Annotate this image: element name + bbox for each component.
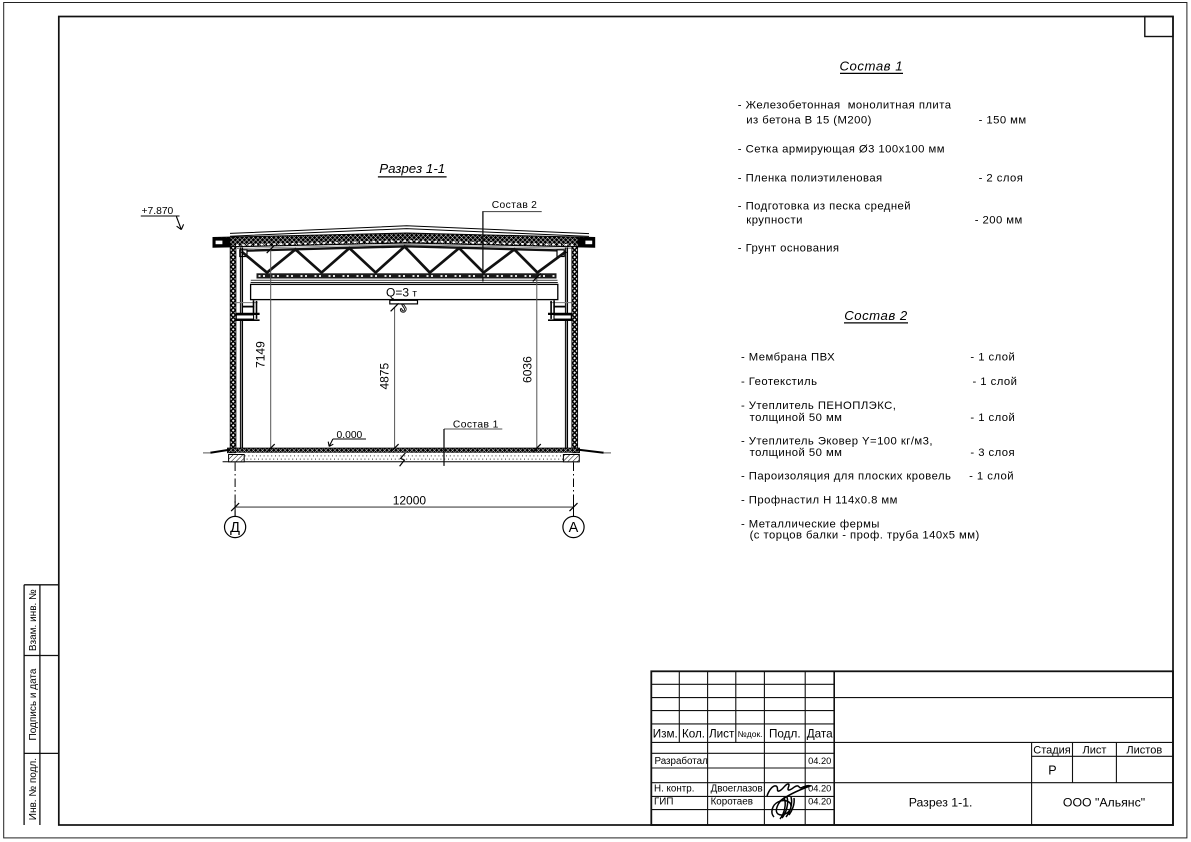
svg-text:- Утеплитель Эковер Y=100 кг/м: - Утеплитель Эковер Y=100 кг/м3, — [741, 436, 933, 448]
svg-text:из бетона В 15 (М200): из бетона В 15 (М200) — [746, 114, 871, 126]
svg-text:- Подготовка из песка средней: - Подготовка из песка средней — [738, 201, 911, 213]
svg-text:7149: 7149 — [254, 341, 268, 368]
svg-text:- 200 мм: - 200 мм — [975, 214, 1023, 226]
svg-text:Изм.: Изм. — [653, 728, 678, 741]
svg-text:№док.: №док. — [738, 729, 763, 739]
svg-text:6036: 6036 — [521, 356, 535, 383]
svg-text:- 1 слой: - 1 слой — [973, 376, 1018, 388]
svg-text:- 1 слой: - 1 слой — [970, 351, 1015, 363]
svg-text:Состав 2: Состав 2 — [492, 200, 538, 211]
svg-text:- Сетка армирующая Ø3 100х100: - Сетка армирующая Ø3 100х100 мм — [738, 144, 945, 156]
svg-text:Лист: Лист — [709, 728, 735, 741]
svg-text:- Мембрана ПВХ: - Мембрана ПВХ — [741, 351, 835, 363]
svg-text:Разрез 1-1.: Разрез 1-1. — [909, 796, 973, 810]
svg-text:- Железобетонная монолитная п: - Железобетонная монолитная плита — [738, 100, 952, 112]
svg-text:А: А — [569, 520, 579, 536]
svg-text:04.20: 04.20 — [808, 797, 831, 807]
svg-text:Стадия: Стадия — [1033, 744, 1071, 756]
svg-text:Взам. инв. №: Взам. инв. № — [28, 589, 39, 651]
svg-text:Листов: Листов — [1126, 744, 1162, 756]
svg-text:Дата: Дата — [807, 728, 833, 741]
svg-text:Разрез 1-1: Разрез 1-1 — [379, 161, 445, 176]
svg-text:- Утеплитель ПЕНОПЛЭКС,: - Утеплитель ПЕНОПЛЭКС, — [741, 400, 896, 412]
svg-text:- 2 слоя: - 2 слоя — [979, 173, 1024, 185]
svg-text:- 1 слой: - 1 слой — [970, 412, 1015, 424]
svg-text:толщиной 50 мм: толщиной 50 мм — [750, 447, 843, 459]
svg-text:Подпись и дата: Подпись и дата — [28, 668, 39, 740]
svg-text:04.20: 04.20 — [808, 756, 831, 766]
svg-text:- 150 мм: - 150 мм — [979, 114, 1027, 126]
svg-text:Коротаев: Коротаев — [711, 797, 753, 808]
svg-text:- Пароизоляция для плоских кро: - Пароизоляция для плоских кровель — [741, 470, 951, 482]
svg-text:Лист: Лист — [1083, 744, 1107, 756]
svg-text:Состав 1: Состав 1 — [840, 58, 904, 73]
svg-text:12000: 12000 — [393, 494, 427, 508]
svg-text:Разработал: Разработал — [655, 756, 709, 767]
svg-text:- 3 слоя: - 3 слоя — [970, 447, 1015, 459]
svg-text:Состав 2: Состав 2 — [844, 308, 908, 323]
svg-text:Подл.: Подл. — [769, 728, 801, 741]
svg-text:Двоеглазов: Двоеглазов — [711, 784, 763, 795]
svg-text:крупности: крупности — [746, 214, 803, 226]
svg-text:- Геотекстиль: - Геотекстиль — [741, 376, 817, 388]
svg-text:Д: Д — [230, 520, 240, 536]
svg-text:Р: Р — [1048, 764, 1056, 778]
svg-text:Н. контр.: Н. контр. — [654, 784, 694, 795]
svg-text:- Пленка полиэтиленовая: - Пленка полиэтиленовая — [738, 173, 883, 185]
svg-text:4875: 4875 — [377, 363, 391, 390]
svg-text:Кол.: Кол. — [682, 728, 705, 741]
svg-text:ГИП: ГИП — [654, 797, 673, 808]
svg-text:- Профнастил Н 114х0.8 мм: - Профнастил Н 114х0.8 мм — [741, 494, 898, 506]
svg-text:толщиной 50 мм: толщиной 50 мм — [750, 412, 843, 424]
svg-text:Инв. № подл.: Инв. № подл. — [28, 758, 39, 820]
svg-text:(с торцов балки - проф. труба: (с торцов балки - проф. труба 140х5 мм) — [750, 530, 980, 542]
svg-text:04.20: 04.20 — [808, 784, 831, 794]
svg-text:Q=3 т: Q=3 т — [386, 286, 417, 300]
svg-text:- Грунт основания: - Грунт основания — [738, 242, 840, 254]
svg-text:ООО "Альянс": ООО "Альянс" — [1063, 796, 1145, 810]
svg-text:- 1 слой: - 1 слой — [969, 470, 1014, 482]
